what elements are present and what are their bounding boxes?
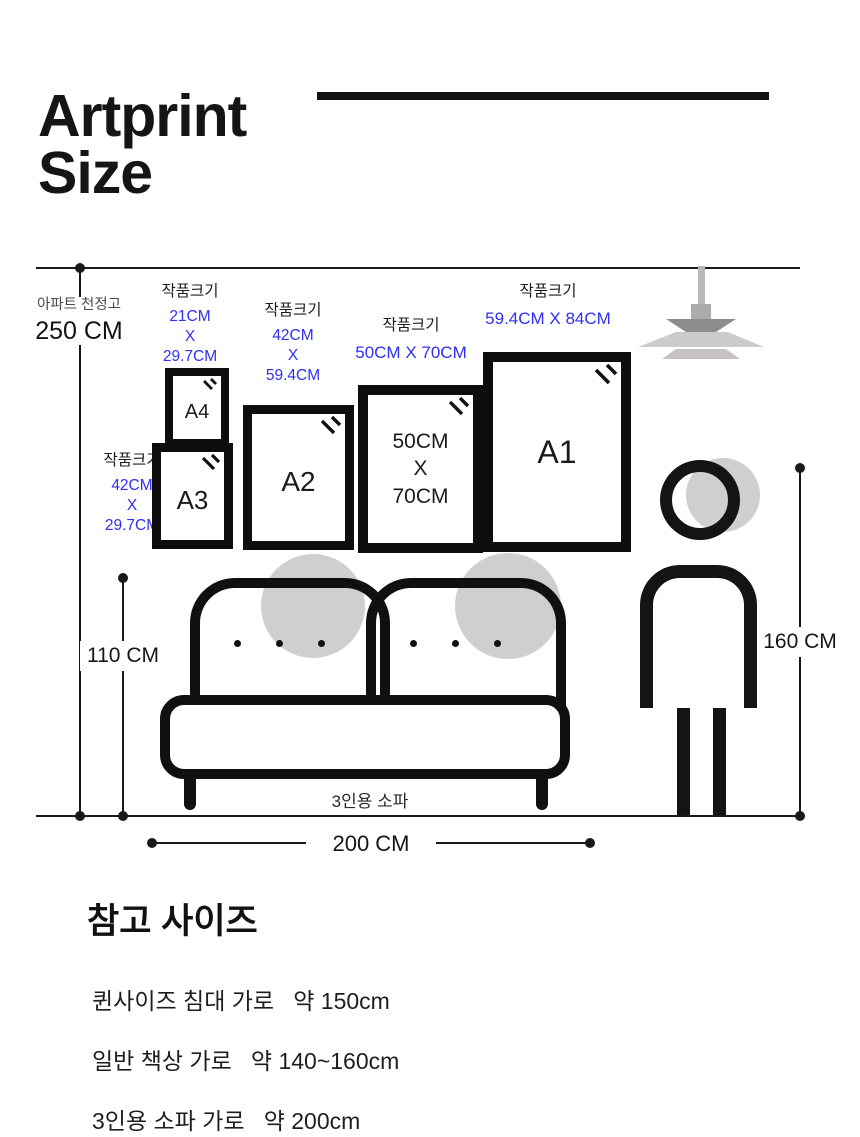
- reference-sizes-section: 참고 사이즈 퀸사이즈 침대 가로 약 150cm 일반 책상 가로 약 140…: [87, 893, 399, 1137]
- page-title: Artprint Size: [38, 88, 246, 202]
- measure-dot: [118, 811, 128, 821]
- cushion-button-dot: [494, 640, 501, 647]
- frame-a2-caption: 작품크기 42CM X 59.4CM: [240, 302, 346, 386]
- frame-a2: A2: [243, 405, 354, 550]
- reference-item: 퀸사이즈 침대 가로 약 150cm: [92, 982, 399, 1016]
- reflection-icon: [595, 364, 618, 387]
- cushion-button-dot: [234, 640, 241, 647]
- sofa-leg: [184, 776, 196, 810]
- measure-dot: [585, 838, 595, 848]
- frame-a2-text: A2: [281, 466, 315, 498]
- sofa-seat-base: [160, 695, 570, 779]
- ceiling-height-line: [79, 268, 81, 816]
- cushion-button-dot: [318, 640, 325, 647]
- reference-item: 3인용 소파 가로 약 200cm: [92, 1102, 399, 1136]
- reflection-icon: [321, 416, 342, 437]
- frame-a1-text: A1: [537, 434, 576, 471]
- frame-50x70-caption: 작품크기 50CM X 70CM: [335, 317, 487, 364]
- ceiling-height-label: 아파트 천정고 250 CM: [30, 297, 128, 345]
- reference-list: 퀸사이즈 침대 가로 약 150cm 일반 책상 가로 약 140~160cm …: [87, 982, 399, 1136]
- frame-a1-caption: 작품크기 59.4CM X 84CM: [470, 283, 626, 330]
- frame-50x70-caption-size: 50CM X 70CM: [335, 342, 487, 364]
- cushion-button-dot: [276, 640, 283, 647]
- reflection-icon: [449, 397, 470, 418]
- frame-a3-text: A3: [177, 485, 209, 516]
- measure-dot: [147, 838, 157, 848]
- sofa-back-cushion-right: [366, 578, 566, 710]
- frame-a1-caption-title: 작품크기: [470, 283, 626, 302]
- sofa-back-cushion-left: [190, 578, 390, 710]
- measure-dot: [795, 463, 805, 473]
- person-head: [660, 460, 740, 540]
- person-torso: [640, 565, 757, 708]
- sofa-caption: 3인용 소파: [318, 787, 422, 812]
- artprint-size-infographic: Artprint Size 아파트 천정고 250 CM 110 CM 160 …: [0, 0, 860, 1137]
- person-height-label: 160 CM: [757, 627, 843, 657]
- frame-a4-caption-size: 21CM X 29.7CM: [138, 307, 242, 367]
- reflection-icon: [202, 454, 221, 473]
- cushion-button-dot: [410, 640, 417, 647]
- measure-dot: [75, 263, 85, 273]
- person-leg: [713, 708, 726, 815]
- cushion-button-dot: [452, 640, 459, 647]
- frame-a4: A4: [165, 368, 229, 447]
- sofa-width-label: 200 CM: [306, 829, 436, 858]
- measure-dot: [118, 573, 128, 583]
- frame-a2-caption-title: 작품크기: [240, 302, 346, 321]
- frame-a4-caption-title: 작품크기: [138, 283, 242, 302]
- measure-dot: [75, 811, 85, 821]
- reflection-icon: [203, 378, 218, 393]
- title-rule: [317, 92, 769, 100]
- ceiling-label-text: 아파트 천정고: [30, 297, 128, 314]
- frame-a4-text: A4: [185, 401, 209, 424]
- pendant-lamp-icon: [636, 266, 768, 362]
- ceiling-height-value: 250 CM: [30, 317, 128, 346]
- floor-line: [36, 815, 800, 817]
- reference-heading: 참고 사이즈: [87, 893, 399, 944]
- sofa-leg: [536, 776, 548, 810]
- frame-a2-caption-size: 42CM X 59.4CM: [240, 326, 346, 386]
- frame-50x70: 50CM X 70CM: [358, 385, 483, 553]
- page-title-line1: Artprint: [38, 88, 246, 145]
- frame-a3: A3: [152, 443, 233, 549]
- frame-a1: A1: [483, 352, 631, 552]
- frame-50x70-text: 50CM X 70CM: [392, 428, 448, 510]
- frame-50x70-caption-title: 작품크기: [335, 317, 487, 336]
- sofa-height-line: [122, 578, 124, 816]
- measure-dot: [795, 811, 805, 821]
- frame-a1-caption-size: 59.4CM X 84CM: [470, 308, 626, 330]
- sofa-height-label: 110 CM: [80, 641, 166, 671]
- person-leg: [677, 708, 690, 815]
- page-title-line2: Size: [38, 145, 246, 202]
- reference-item: 일반 책상 가로 약 140~160cm: [92, 1042, 399, 1076]
- frame-a4-caption: 작품크기 21CM X 29.7CM: [138, 283, 242, 367]
